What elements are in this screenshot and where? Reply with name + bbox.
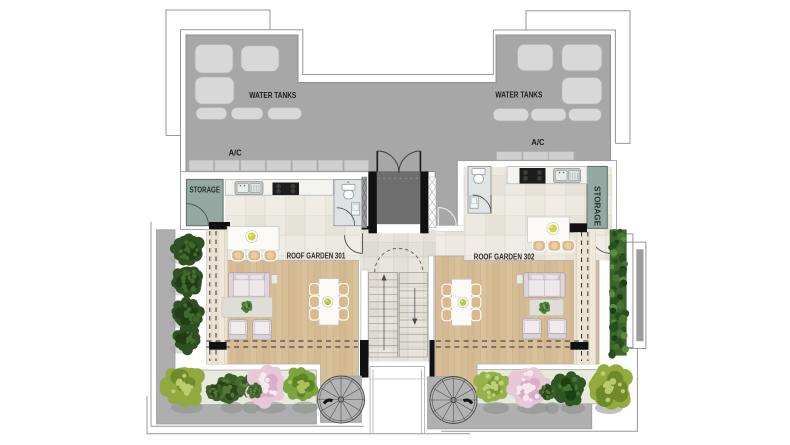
svg-text:WATER TANKS: WATER TANKS [249,91,297,100]
svg-text:WATER TANKS: WATER TANKS [495,90,543,99]
svg-text:A/C: A/C [229,148,242,157]
svg-text:STORAGE: STORAGE [190,184,221,194]
svg-text:ROOF GARDEN 302: ROOF GARDEN 302 [474,252,535,261]
svg-text:STORAGE: STORAGE [593,186,602,227]
svg-text:A/C: A/C [531,138,544,147]
svg-text:ROOF GARDEN 301: ROOF GARDEN 301 [287,252,346,261]
